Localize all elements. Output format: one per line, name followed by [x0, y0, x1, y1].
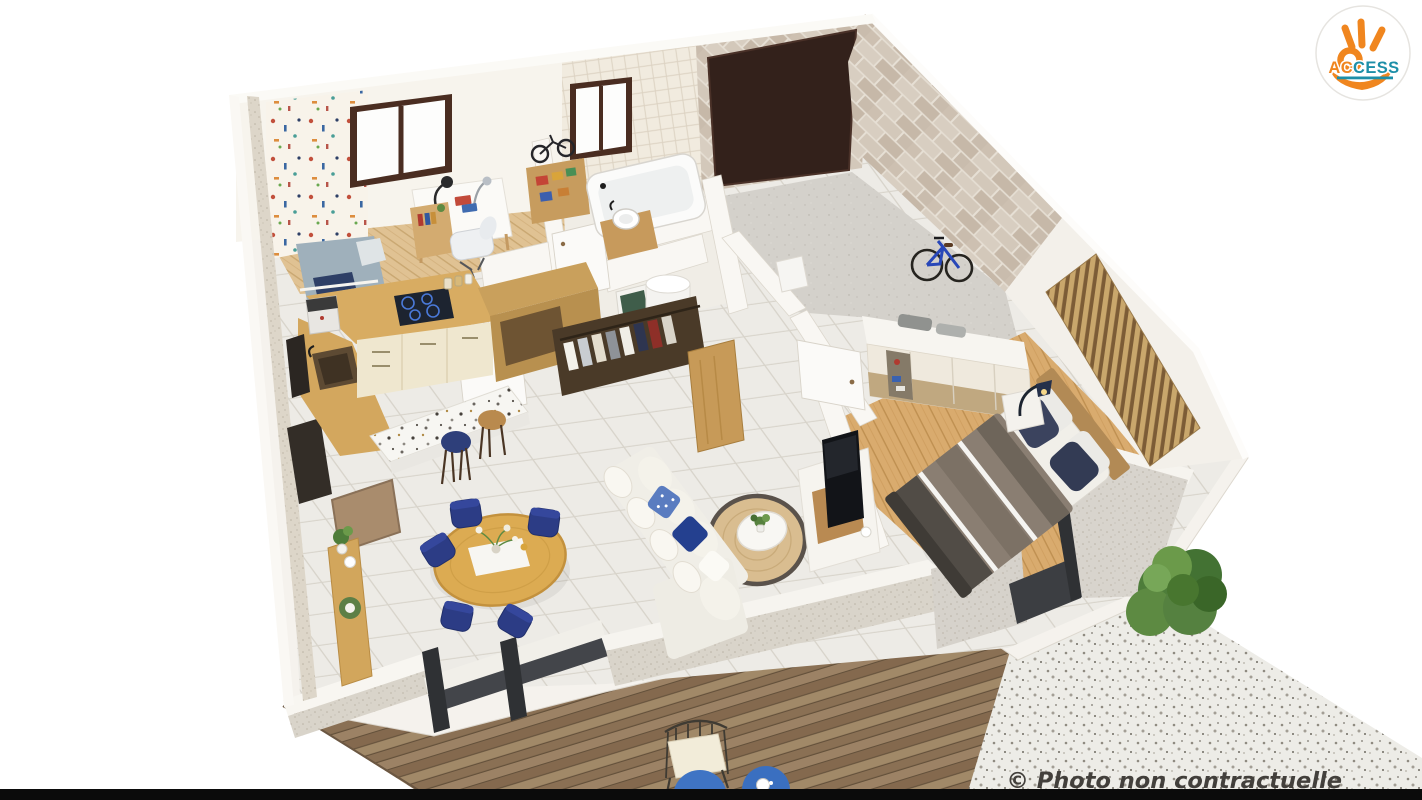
access-logo: ACCESS	[1316, 6, 1410, 100]
logo-wordmark: ACCESS	[1328, 59, 1399, 77]
logo-underline	[1337, 77, 1393, 80]
desk-shelf	[410, 202, 455, 259]
bathroom-window	[570, 77, 632, 160]
floorplan-render: © Photo non contractuelle ACCESS	[0, 0, 1422, 800]
wardrobe-door	[688, 340, 744, 452]
storage-box	[776, 256, 808, 292]
desk-lamp	[441, 176, 453, 188]
watermark: © Photo non contractuelle	[1006, 768, 1342, 794]
coffee-machine	[306, 296, 340, 334]
garage-door	[708, 30, 856, 186]
closet-open-shelf	[886, 350, 913, 400]
office-window	[350, 94, 452, 188]
